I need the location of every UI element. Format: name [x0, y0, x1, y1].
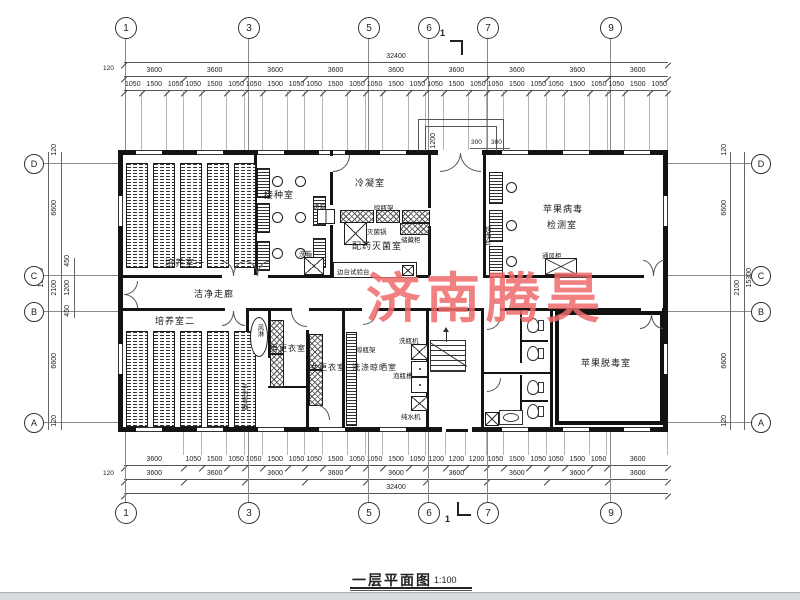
dim-segment: 1050 [227, 80, 245, 90]
shelving-rack [207, 163, 229, 268]
room-label-culture2: 培养室二 [155, 314, 195, 327]
dim-segment: 3600 [426, 469, 486, 479]
dim-segment: 3600 [124, 66, 184, 76]
room-label-washing: 洗涤晾晒室 [352, 362, 397, 373]
wall [483, 372, 552, 374]
grid-line [487, 432, 488, 502]
bottle-rack-label: 晾瓶架 [374, 202, 394, 212]
room-label-culture1: 培养室一 [165, 256, 205, 269]
dim-segment: 1050 [409, 455, 427, 465]
dim-line [730, 152, 731, 430]
drawing-scale: 1:100 [434, 575, 457, 585]
grid-bubble-row-b: B [751, 302, 771, 322]
dim-segment: 3600 [124, 455, 184, 465]
dim-segment: 1050 [245, 80, 263, 90]
air-shower-pod [250, 317, 268, 357]
soak-sink [411, 361, 428, 377]
dim-row-top-detail: 1050150010501050150010501050150010501050… [124, 80, 668, 91]
dim-segment: 1500 [504, 80, 529, 90]
dim-segment: 3600 [487, 469, 547, 479]
wall [309, 308, 362, 311]
shelving-rack [180, 331, 202, 427]
grid-bubble-row-b: B [24, 302, 44, 322]
dim-segment: 3600 [547, 66, 607, 76]
section-marker-label: 1 [445, 514, 450, 524]
water-purifier-label: 纯水机 [401, 411, 421, 421]
dim-label: 300 [491, 139, 502, 146]
dim-label: 120 [721, 144, 728, 156]
dim-segment: 3600 [184, 66, 244, 76]
grid-bubble-col-1: 1 [115, 502, 137, 524]
dim-segment: 1050 [348, 80, 366, 90]
wall [520, 340, 548, 342]
window [380, 150, 406, 155]
shelving-rack [207, 331, 229, 427]
wall [664, 275, 668, 278]
room-label-corridor: 洁净走廊 [194, 287, 234, 300]
dim-label: 450 [64, 255, 71, 267]
window [663, 196, 668, 226]
bottle-washer-label: 洗瓶机 [399, 335, 419, 345]
dim-segment: 1050 [288, 455, 306, 465]
grid-line [125, 432, 126, 502]
window [136, 150, 162, 155]
washbasin [499, 410, 523, 425]
window [502, 427, 528, 432]
dim-segment: 1500 [263, 455, 288, 465]
grid-line [42, 275, 118, 276]
shelving-rack [153, 331, 175, 427]
dim-segment: 1050 [348, 455, 366, 465]
dim-segment: 1050 [469, 80, 487, 90]
grid-bubble-col-5: 5 [358, 502, 380, 524]
stool [295, 176, 306, 187]
door-swing [314, 404, 330, 420]
wall [428, 150, 431, 208]
dim-segment: 3600 [124, 469, 184, 479]
dim-segment: 1500 [202, 455, 227, 465]
grid-bubble-col-3: 3 [238, 17, 260, 39]
floor-plan-drawing: 1 3 5 6 7 9 1 32400 36003600360036003600… [0, 0, 800, 600]
dim-edge-label: 120 [103, 65, 114, 72]
dim-line [48, 152, 49, 430]
dim-segment: 1050 [426, 80, 444, 90]
dim-label: 2100 [51, 280, 58, 296]
dim-label: 6600 [51, 353, 58, 369]
dim-segment: 1500 [263, 80, 288, 90]
door-swing [291, 311, 307, 327]
threshold [446, 429, 468, 432]
stool [272, 212, 283, 223]
door-swing [124, 294, 138, 308]
window [197, 150, 223, 155]
wall [330, 172, 333, 205]
wall [118, 275, 222, 278]
room-label-virus-test: 苹果病毒 [543, 202, 583, 215]
shelving-rack [153, 163, 175, 268]
soak-sink [411, 377, 428, 393]
watermark: 济南腾昊 [366, 254, 606, 333]
grid-line [368, 432, 369, 502]
bottle-rack-label: 晾瓶架 [356, 344, 376, 354]
door-swing [440, 153, 461, 172]
window [380, 427, 406, 432]
dim-row-bottom-bays: 360036003600360036003600360036003600 [124, 469, 668, 480]
dim-label: 120 [721, 415, 728, 427]
stool [506, 182, 517, 193]
bottle-washer [411, 344, 428, 360]
clean-bench [489, 172, 503, 204]
grid-line [428, 432, 429, 502]
dim-segment: 1200 [466, 455, 486, 465]
dim-row-bottom-total: 32400 [124, 483, 668, 494]
dim-label: 120 [51, 144, 58, 156]
grid-bubble-col-7: 7 [477, 17, 499, 39]
room-label-inoculation: 接种室 [264, 188, 294, 201]
door-swing [487, 378, 501, 392]
stool [272, 248, 283, 259]
dim-line [470, 148, 510, 149]
grid-bubble-row-d: D [24, 154, 44, 174]
dim-row-top-bays: 360036003600360036003600360036003600 [124, 66, 668, 77]
shelving-rack [126, 163, 148, 268]
dim-segment: 3600 [366, 66, 426, 76]
dim-segment: 1500 [142, 80, 167, 90]
dim-segment: 1050 [650, 80, 668, 90]
window [118, 196, 123, 226]
wash-box [304, 257, 324, 275]
dim-row-bottom-detail: 3600105015001050105015001050105015001050… [124, 455, 668, 466]
section-marker-label: 1 [440, 28, 445, 38]
side-bench-label: 边台试验台 [337, 266, 370, 276]
door-swing [233, 311, 245, 326]
dim-segment: 1500 [383, 455, 408, 465]
dim-label: 32400 [124, 483, 668, 493]
dim-segment: 1050 [529, 80, 547, 90]
toilet [527, 404, 539, 419]
dim-label: 300 [471, 139, 482, 146]
toilet [527, 346, 539, 361]
dim-label: 6600 [721, 200, 728, 216]
dim-segment: 1500 [504, 455, 529, 465]
wall [118, 308, 225, 311]
wall [520, 400, 548, 402]
grid-bubble-col-1: 1 [115, 17, 137, 39]
toilet [527, 380, 539, 395]
dim-segment: 1500 [565, 455, 590, 465]
locker [309, 370, 323, 406]
stool [272, 176, 283, 187]
dim-row-top-total: 32400 [124, 52, 668, 63]
stool [506, 220, 517, 231]
stool [295, 212, 306, 223]
dim-segment: 1500 [444, 80, 469, 90]
dim-segment: 1050 [366, 80, 384, 90]
bench [257, 203, 270, 233]
grid-bubble-col-9: 9 [600, 17, 622, 39]
dim-segment: 3600 [426, 66, 486, 76]
page-edge-strip [0, 592, 800, 600]
wall [118, 150, 123, 432]
dim-segment: 1500 [323, 455, 348, 465]
dim-segment: 1050 [305, 80, 323, 90]
wash-box-label: 洗箱 [299, 248, 312, 258]
dim-segment: 1050 [529, 455, 547, 465]
water-purifier [411, 396, 428, 411]
soak-sink-label: 泡瓶槽 [393, 370, 413, 380]
dim-segment: 1050 [184, 455, 202, 465]
dim-label: 2100 [734, 280, 741, 296]
sterilizer-label: 灭菌锅 [367, 226, 387, 236]
shelving-rack [234, 163, 256, 268]
dim-segment: 1500 [323, 80, 348, 90]
dim-edge-label: 120 [103, 470, 114, 477]
grid-line [668, 311, 751, 312]
window [624, 150, 650, 155]
dim-segment: 1050 [124, 80, 142, 90]
dim-segment: 1200 [446, 455, 466, 465]
storage-cabinet-label: 储藏柜 [401, 234, 421, 244]
dim-label: 6600 [721, 353, 728, 369]
dim-segment: 3600 [184, 469, 244, 479]
grid-line [668, 422, 751, 423]
dim-label: 450 [64, 305, 71, 317]
bench [402, 210, 430, 223]
grid-line [668, 275, 751, 276]
dim-line [61, 152, 62, 430]
grid-bubble-row-a: A [24, 413, 44, 433]
door-swing [333, 155, 350, 172]
title-underline [350, 587, 472, 589]
grid-bubble-col-3: 3 [238, 502, 260, 524]
door-swing [124, 281, 138, 295]
dim-segment: 1050 [305, 455, 323, 465]
window [258, 427, 284, 432]
window [197, 427, 223, 432]
dim-segment: 1050 [487, 455, 505, 465]
window [624, 427, 650, 432]
room-label-women-change: 女更衣室 [310, 362, 346, 373]
dim-label: 1200 [64, 280, 71, 296]
window [563, 150, 589, 155]
pass-box [317, 209, 335, 224]
grid-bubble-col-5: 5 [358, 17, 380, 39]
dim-segment: 1050 [487, 80, 505, 90]
dim-segment: 3600 [366, 469, 426, 479]
grid-bubble-row-c: C [24, 266, 44, 286]
room-label-condensing: 冷凝室 [355, 176, 385, 189]
window [118, 344, 123, 374]
dim-label: 120 [51, 415, 58, 427]
grid-line [610, 432, 611, 502]
dim-segment: 1050 [547, 80, 565, 90]
dim-segment: 3600 [245, 66, 305, 76]
room-label-detox: 苹果脱毒室 [581, 356, 631, 369]
dim-segment: 3600 [305, 66, 365, 76]
room-label-prep-sterilize: 配药灭菌室 [352, 239, 402, 252]
grid-line [42, 311, 118, 312]
dim-segment: 3600 [245, 469, 305, 479]
window [563, 427, 589, 432]
grid-bubble-row-c: C [751, 266, 771, 286]
dim-segment: 1050 [227, 455, 245, 465]
dim-segment: 3600 [305, 469, 365, 479]
dim-label: 32400 [124, 52, 668, 62]
grid-bubble-col-9: 9 [600, 502, 622, 524]
dim-line [744, 152, 745, 430]
dim-segment: 1050 [547, 455, 565, 465]
dim-segment: 3600 [608, 469, 668, 479]
section-marker-line [457, 514, 471, 516]
dim-segment: 1050 [167, 80, 185, 90]
door-swing [653, 260, 664, 276]
dim-segment: 1050 [590, 455, 608, 465]
door-swing [460, 153, 481, 172]
grid-line [42, 163, 118, 164]
pass-box-label: 递箱 [313, 201, 326, 211]
mop-sink [485, 412, 499, 426]
grid-bubble-col-6: 6 [418, 17, 440, 39]
dim-segment: 3600 [487, 66, 547, 76]
locker [270, 354, 284, 388]
grid-bubble-row-d: D [751, 154, 771, 174]
dim-segment: 1500 [202, 80, 227, 90]
dim-segment: 1050 [608, 80, 626, 90]
dim-segment: 1050 [288, 80, 306, 90]
room-label-air-shower: 风淋 [254, 324, 264, 337]
shelving-rack [180, 163, 202, 268]
grid-bubble-col-7: 7 [477, 502, 499, 524]
dim-segment: 3600 [547, 469, 607, 479]
dim-segment: 1050 [184, 80, 202, 90]
dim-segment: 1200 [426, 455, 446, 465]
title-underline [350, 590, 472, 591]
dim-line [74, 258, 75, 318]
hand-sanitizer-label: 手消毒器 [238, 384, 248, 410]
dim-segment: 1500 [625, 80, 650, 90]
grid-line [668, 163, 751, 164]
dim-segment: 1050 [409, 80, 427, 90]
dim-label: 6600 [51, 200, 58, 216]
shelving-rack [126, 331, 148, 427]
window [502, 150, 528, 155]
clean-bench-label: 超净台 [481, 226, 491, 246]
dim-label: 1200 [430, 133, 437, 149]
dim-segment: 1500 [383, 80, 408, 90]
grid-line [248, 432, 249, 502]
clean-bench [489, 210, 503, 242]
grid-bubble-row-a: A [751, 413, 771, 433]
room-label-men-change: 男更衣室 [270, 343, 306, 354]
grid-bubble-col-6: 6 [418, 502, 440, 524]
dim-segment: 3600 [607, 455, 667, 465]
dim-segment: 3600 [608, 66, 668, 76]
dim-segment: 1500 [565, 80, 590, 90]
dim-segment: 1050 [590, 80, 608, 90]
room-label-virus-test2: 检测室 [547, 218, 577, 231]
window [136, 427, 162, 432]
window [258, 150, 284, 155]
